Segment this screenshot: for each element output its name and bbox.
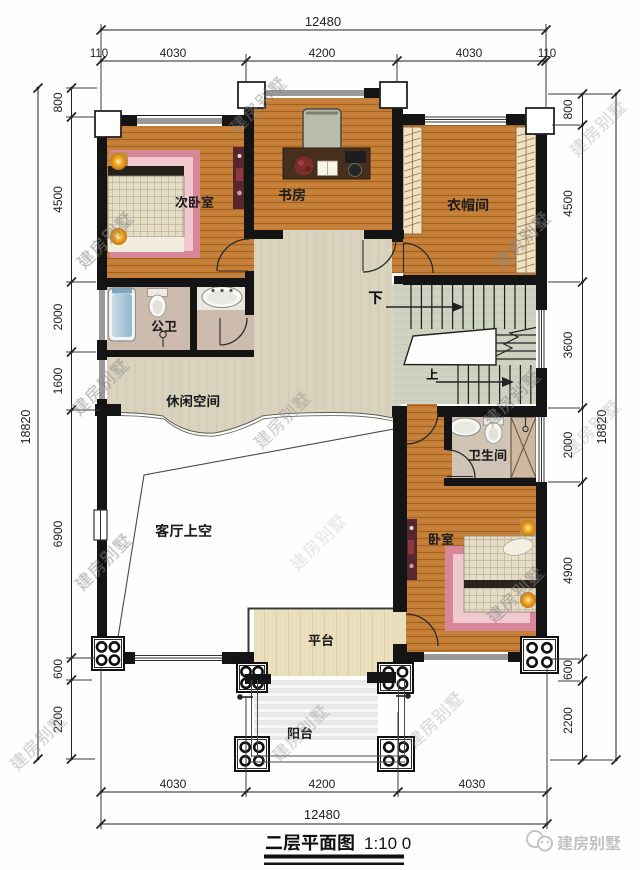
svg-text:12480: 12480 bbox=[305, 14, 341, 29]
svg-text:800: 800 bbox=[51, 92, 65, 112]
svg-text:4500: 4500 bbox=[561, 190, 575, 217]
svg-text:4030: 4030 bbox=[459, 777, 486, 791]
svg-text:110: 110 bbox=[538, 48, 556, 60]
svg-text:4200: 4200 bbox=[309, 777, 336, 791]
svg-text:18820: 18820 bbox=[19, 410, 33, 445]
svg-text:1600: 1600 bbox=[51, 367, 65, 394]
svg-text:2000: 2000 bbox=[51, 303, 65, 330]
svg-text:1:10 0: 1:10 0 bbox=[364, 834, 411, 853]
svg-text:12480: 12480 bbox=[304, 807, 340, 822]
svg-text:6900: 6900 bbox=[51, 520, 65, 547]
svg-text:4030: 4030 bbox=[160, 46, 187, 60]
svg-text:3600: 3600 bbox=[561, 331, 575, 358]
svg-text:600: 600 bbox=[561, 660, 575, 680]
svg-text:110: 110 bbox=[90, 48, 108, 60]
svg-text:800: 800 bbox=[561, 99, 575, 119]
svg-text:4030: 4030 bbox=[456, 46, 483, 60]
svg-text:4500: 4500 bbox=[51, 186, 65, 213]
svg-text:600: 600 bbox=[51, 659, 65, 679]
svg-text:4900: 4900 bbox=[561, 557, 575, 584]
svg-text:2200: 2200 bbox=[561, 707, 575, 734]
svg-text:4200: 4200 bbox=[309, 46, 336, 60]
svg-text:4030: 4030 bbox=[160, 777, 187, 791]
